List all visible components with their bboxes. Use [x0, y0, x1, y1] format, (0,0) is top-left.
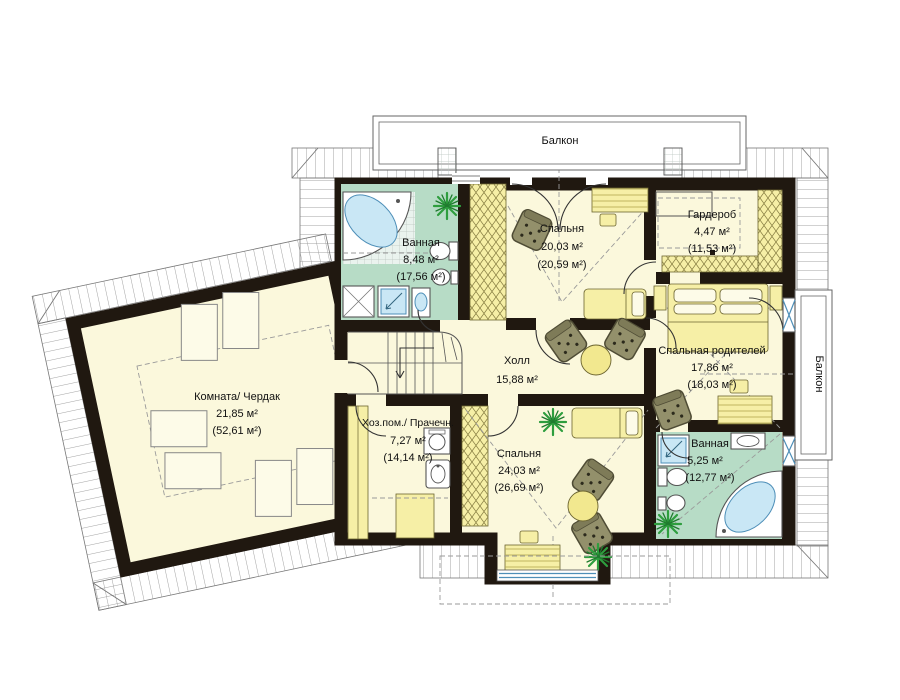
bidet-icon — [658, 495, 685, 511]
room-area: 24,03 м² — [498, 465, 540, 477]
round-table-icon — [568, 491, 598, 521]
room-label: Ванная — [691, 438, 729, 450]
window-icon — [783, 436, 795, 466]
room-area-total: (12,77 м²) — [685, 472, 734, 484]
room-area: 8,48 м² — [403, 254, 439, 266]
bed-icon — [572, 408, 642, 438]
room-area: 20,03 м² — [541, 241, 583, 253]
plant-icon — [655, 511, 681, 537]
room-area: 4,47 м² — [694, 226, 730, 238]
room-bathroom-bottom: Ванная 5,25 м² (12,77 м²) — [655, 432, 785, 542]
window-opening — [452, 173, 480, 184]
room-label: Ванная — [402, 237, 440, 249]
floor-plan-page: Ванная 8,48 м² (17,56 м²) Спальня 20,03 … — [0, 0, 900, 700]
room-area: 7,27 м² — [390, 435, 426, 447]
washing-machine-icon — [424, 428, 450, 454]
washbasin-icon — [412, 288, 430, 317]
bay-window-icon — [497, 570, 598, 581]
room-area-total: (17,56 м²) — [396, 271, 445, 283]
balcony-door-icon — [783, 298, 795, 332]
balcony-top-label: Балкон — [542, 135, 579, 147]
room-label: Гардероб — [688, 209, 736, 221]
balcony-pillar — [664, 148, 682, 175]
room-area: 17,86 м² — [691, 362, 733, 374]
shower-icon — [378, 286, 409, 317]
plant-icon — [540, 409, 566, 435]
toilet-icon — [658, 468, 687, 486]
room-area-total: (18,03 м²) — [687, 379, 736, 391]
balcony-pillar — [438, 148, 456, 175]
plant-icon — [434, 193, 460, 219]
room-area-total: (20,59 м²) — [537, 259, 586, 271]
balcony-right-label: Балкон — [813, 356, 825, 393]
plant-icon — [585, 544, 611, 570]
attic-door-opening — [334, 360, 348, 393]
room-label: Спальня — [497, 448, 541, 460]
room-area-total: (26,69 м²) — [494, 482, 543, 494]
room-label: Спальная родителей — [658, 345, 765, 357]
room-area: 21,85 м² — [216, 408, 258, 420]
room-label: Спальня — [540, 223, 584, 235]
room-label: Хоз.пом./ Прачечн. — [362, 417, 454, 429]
room-area: 15,88 м² — [496, 374, 538, 386]
room-area: 5,25 м² — [687, 455, 723, 467]
laundry-sink-icon — [426, 460, 450, 488]
bed-icon — [584, 289, 646, 319]
room-area-total: (52,61 м²) — [212, 425, 261, 437]
room-bathroom-top: Ванная 8,48 м² (17,56 м²) — [335, 184, 460, 332]
room-area-total: (14,14 м²) — [383, 452, 432, 464]
double-bed-icon — [654, 284, 782, 352]
room-label: Комната/ Чердак — [194, 391, 280, 403]
washbasin-icon — [731, 433, 765, 449]
floor-plan-svg: Ванная 8,48 м² (17,56 м²) Спальня 20,03 … — [0, 0, 900, 700]
room-area-total: (11,53 м²) — [688, 243, 736, 255]
round-table-icon — [581, 345, 611, 375]
room-label: Холл — [504, 355, 530, 367]
tiled-square — [343, 286, 374, 317]
